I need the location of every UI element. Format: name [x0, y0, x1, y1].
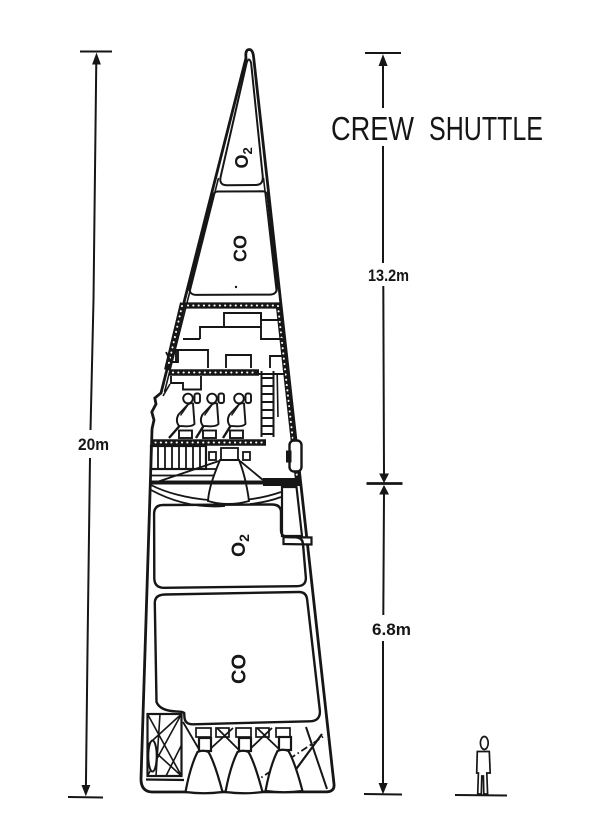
svg-text:CO: CO: [229, 654, 251, 684]
svg-text:CREW: CREW: [331, 110, 415, 147]
svg-text:13.2m: 13.2m: [368, 266, 409, 285]
svg-text:SHUTTLE: SHUTTLE: [429, 110, 543, 147]
svg-text:6.8m: 6.8m: [372, 620, 411, 639]
svg-text:CO: CO: [231, 235, 251, 262]
svg-text:20m: 20m: [78, 435, 109, 454]
